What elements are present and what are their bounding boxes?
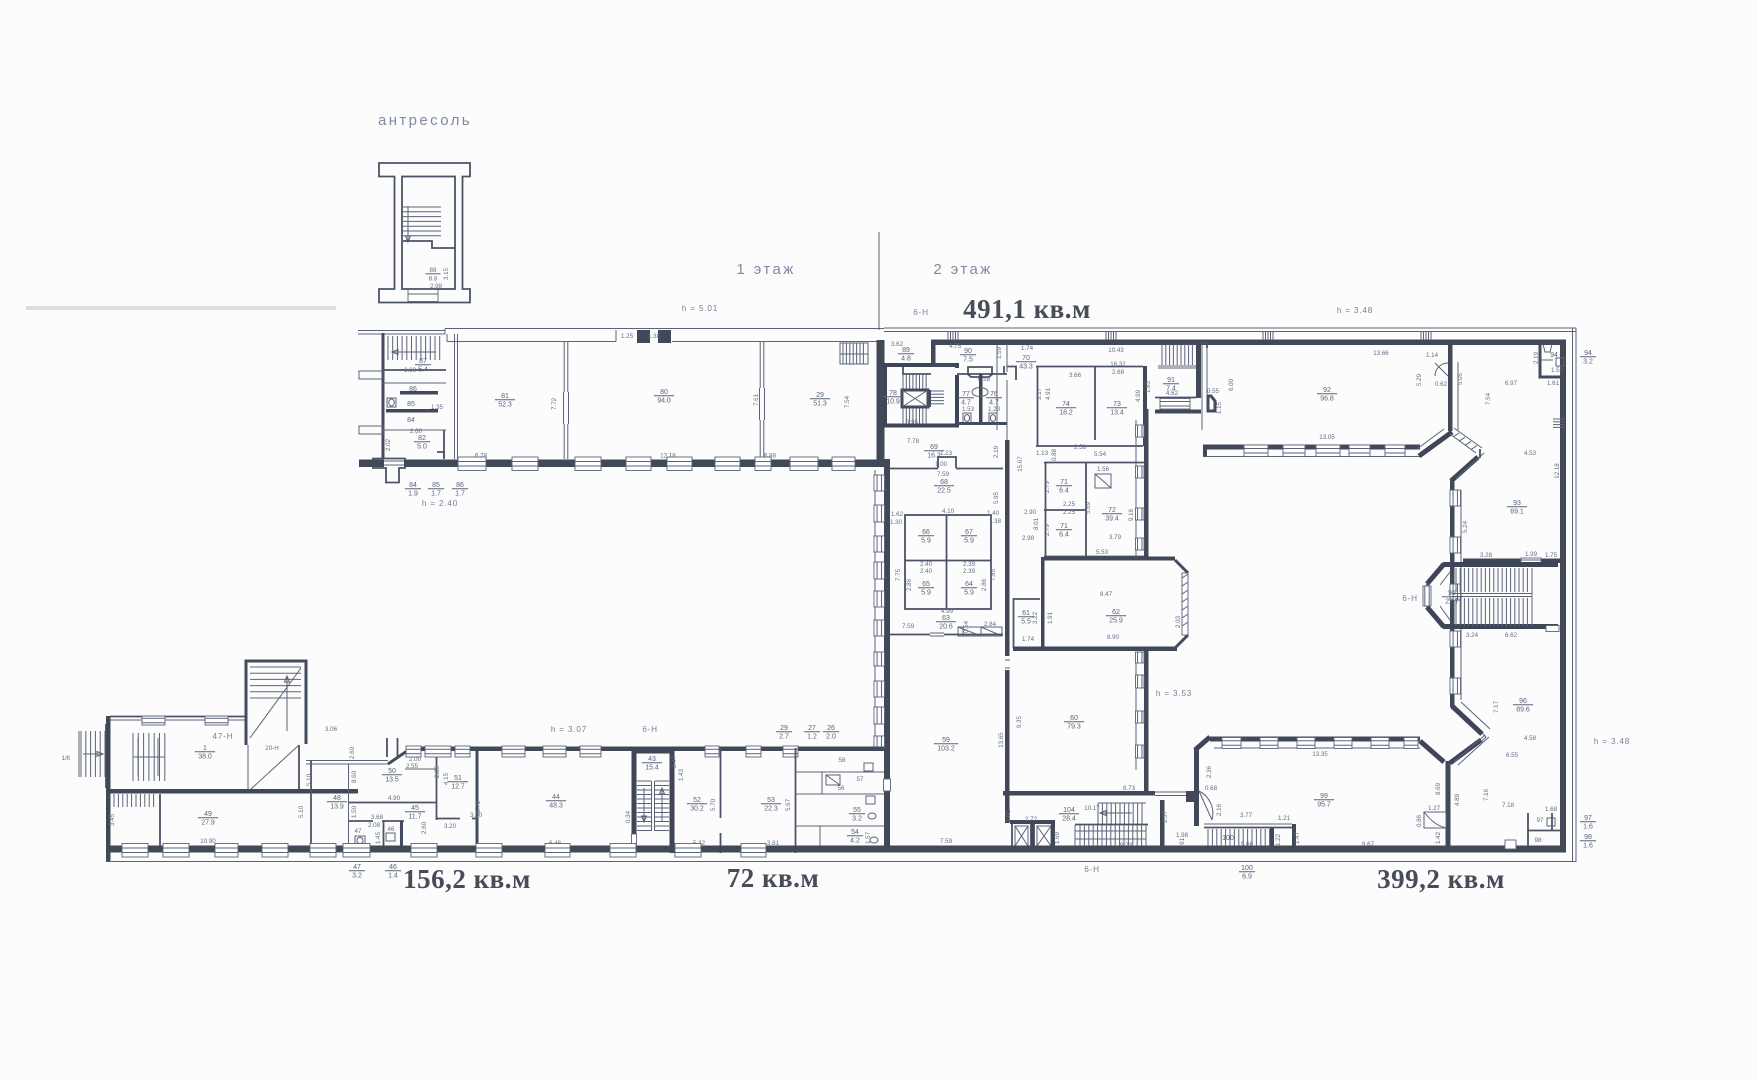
- svg-text:2.79: 2.79: [1044, 480, 1051, 493]
- svg-text:5.5: 5.5: [1021, 619, 1031, 626]
- svg-text:h = 3.48: h = 3.48: [1594, 737, 1630, 746]
- svg-text:5.10: 5.10: [306, 773, 313, 786]
- svg-text:22.5: 22.5: [937, 488, 951, 495]
- svg-text:103.2: 103.2: [937, 746, 955, 753]
- svg-text:7.59: 7.59: [937, 471, 950, 478]
- svg-text:52: 52: [693, 797, 701, 804]
- svg-text:2.19: 2.19: [993, 445, 1000, 458]
- svg-text:89: 89: [902, 347, 910, 354]
- svg-text:9.35: 9.35: [1016, 715, 1023, 728]
- svg-text:7.59: 7.59: [940, 838, 953, 845]
- svg-text:1.43: 1.43: [678, 768, 685, 781]
- svg-text:28.4: 28.4: [1062, 816, 1076, 823]
- svg-text:1.35: 1.35: [431, 404, 444, 411]
- svg-text:3.2: 3.2: [352, 873, 362, 880]
- svg-text:54: 54: [851, 829, 859, 836]
- svg-text:2.79: 2.79: [1044, 523, 1051, 536]
- svg-text:46: 46: [388, 826, 395, 833]
- svg-text:12.7: 12.7: [451, 784, 465, 791]
- svg-text:6.88: 6.88: [764, 453, 777, 460]
- svg-text:3.68: 3.68: [404, 367, 417, 374]
- svg-text:6-Н: 6-Н: [1402, 594, 1418, 603]
- svg-text:18.2: 18.2: [1059, 410, 1073, 417]
- svg-text:64: 64: [965, 581, 973, 588]
- svg-text:62: 62: [1112, 609, 1120, 616]
- svg-text:5.24: 5.24: [1462, 520, 1469, 533]
- svg-text:8.47: 8.47: [1100, 591, 1113, 598]
- svg-text:4.15: 4.15: [443, 772, 450, 785]
- svg-text:5.54: 5.54: [1094, 451, 1107, 458]
- svg-text:3.2: 3.2: [852, 816, 862, 823]
- svg-text:5.29: 5.29: [1416, 373, 1423, 386]
- svg-text:2.39: 2.39: [963, 561, 976, 568]
- svg-text:6.00: 6.00: [1228, 378, 1235, 391]
- svg-text:96.8: 96.8: [1320, 396, 1334, 403]
- svg-text:1.62: 1.62: [891, 511, 904, 518]
- svg-text:46: 46: [389, 864, 397, 871]
- svg-text:93: 93: [1513, 500, 1521, 507]
- svg-text:4.90: 4.90: [388, 795, 401, 802]
- svg-text:53: 53: [767, 797, 775, 804]
- svg-text:3.22: 3.22: [1032, 611, 1039, 624]
- svg-text:2.86: 2.86: [981, 578, 988, 591]
- svg-text:1.7: 1.7: [455, 491, 465, 498]
- svg-text:8.8: 8.8: [429, 276, 438, 283]
- svg-text:85: 85: [407, 401, 415, 408]
- svg-text:8.73: 8.73: [1123, 785, 1136, 792]
- svg-text:7.16: 7.16: [1483, 788, 1490, 801]
- svg-text:5.05: 5.05: [1457, 372, 1464, 385]
- svg-text:13.5: 13.5: [385, 777, 399, 784]
- svg-text:10.90: 10.90: [200, 838, 216, 845]
- svg-text:4.2: 4.2: [850, 838, 860, 845]
- svg-text:88: 88: [430, 267, 437, 274]
- svg-text:1.74: 1.74: [1021, 345, 1034, 352]
- svg-text:2.02: 2.02: [385, 438, 392, 451]
- svg-text:1.83: 1.83: [1145, 380, 1152, 393]
- svg-text:2.40: 2.40: [920, 561, 933, 568]
- svg-text:4.99: 4.99: [941, 608, 954, 615]
- svg-text:5.70: 5.70: [710, 798, 717, 811]
- svg-text:13.05: 13.05: [1319, 434, 1335, 441]
- svg-text:6-Н: 6-Н: [642, 725, 658, 734]
- svg-text:1.21: 1.21: [1278, 815, 1291, 822]
- svg-text:2.60: 2.60: [410, 428, 423, 435]
- svg-text:7.72: 7.72: [551, 397, 558, 410]
- svg-text:38.0: 38.0: [198, 754, 212, 761]
- svg-text:1/К: 1/К: [62, 755, 71, 762]
- svg-text:84: 84: [407, 417, 415, 424]
- svg-text:4.58: 4.58: [1524, 735, 1537, 742]
- svg-text:1.40: 1.40: [987, 510, 1000, 517]
- svg-text:1.98: 1.98: [1176, 832, 1189, 839]
- svg-text:91: 91: [1167, 377, 1175, 384]
- svg-text:6.55: 6.55: [1506, 752, 1519, 759]
- svg-text:7.75: 7.75: [895, 568, 902, 581]
- svg-text:1.27: 1.27: [1428, 805, 1441, 812]
- svg-text:68: 68: [940, 479, 948, 486]
- svg-text:4.99: 4.99: [1135, 389, 1142, 402]
- svg-text:2.08: 2.08: [368, 822, 381, 829]
- svg-text:13.4: 13.4: [1110, 410, 1124, 417]
- svg-text:13.66: 13.66: [1373, 350, 1389, 357]
- svg-text:7.54: 7.54: [844, 395, 851, 408]
- svg-text:1.23: 1.23: [940, 450, 953, 457]
- svg-text:69.1: 69.1: [1510, 509, 1524, 516]
- svg-text:20.6: 20.6: [939, 624, 953, 631]
- svg-text:82: 82: [418, 435, 426, 442]
- svg-text:55: 55: [853, 807, 861, 814]
- svg-text:89.6: 89.6: [1516, 707, 1530, 714]
- svg-text:47: 47: [353, 864, 361, 871]
- svg-text:2.16: 2.16: [1216, 803, 1223, 816]
- svg-text:4.91: 4.91: [1045, 387, 1052, 400]
- svg-text:44: 44: [552, 794, 560, 801]
- svg-text:1.68: 1.68: [1545, 806, 1558, 813]
- svg-text:2.00: 2.00: [409, 756, 422, 763]
- svg-text:92: 92: [1323, 387, 1331, 394]
- svg-text:1.75: 1.75: [1545, 552, 1558, 559]
- svg-text:95.7: 95.7: [1317, 802, 1331, 809]
- svg-text:1.38: 1.38: [989, 518, 1002, 525]
- svg-text:7.17: 7.17: [1493, 700, 1500, 713]
- svg-text:48: 48: [333, 795, 341, 802]
- svg-text:94: 94: [1584, 350, 1592, 357]
- svg-text:47-Н: 47-Н: [213, 732, 234, 741]
- svg-text:43: 43: [648, 756, 656, 763]
- svg-text:98: 98: [1535, 837, 1542, 844]
- svg-text:16.32: 16.32: [1110, 361, 1126, 368]
- svg-text:2.25: 2.25: [1063, 509, 1076, 516]
- svg-text:77: 77: [962, 391, 970, 398]
- svg-text:70: 70: [1022, 355, 1030, 362]
- svg-text:3.24: 3.24: [1466, 632, 1479, 639]
- svg-text:0.34: 0.34: [625, 810, 632, 823]
- svg-text:1.57: 1.57: [1162, 810, 1169, 823]
- svg-text:25.9: 25.9: [1109, 618, 1123, 625]
- svg-text:1.6: 1.6: [1583, 843, 1593, 850]
- svg-text:13.65: 13.65: [998, 732, 1005, 748]
- svg-text:1.45: 1.45: [375, 831, 382, 844]
- svg-text:78: 78: [889, 390, 897, 397]
- svg-text:2.60: 2.60: [421, 821, 428, 834]
- svg-text:8.90: 8.90: [1107, 634, 1120, 641]
- svg-text:1.22: 1.22: [1275, 833, 1282, 846]
- svg-text:66: 66: [922, 529, 930, 536]
- svg-text:2.36: 2.36: [1206, 765, 1213, 778]
- svg-text:13.35: 13.35: [1312, 751, 1328, 758]
- svg-text:0.86: 0.86: [1416, 814, 1423, 827]
- svg-text:2.72: 2.72: [1025, 816, 1038, 823]
- svg-text:156,2 кв.м: 156,2 кв.м: [403, 864, 531, 894]
- svg-text:5.9: 5.9: [921, 538, 931, 545]
- svg-text:72: 72: [1108, 507, 1116, 514]
- svg-text:56: 56: [838, 785, 845, 792]
- svg-text:72 кв.м: 72 кв.м: [727, 863, 820, 893]
- svg-text:30.2: 30.2: [690, 806, 704, 813]
- svg-text:1.01: 1.01: [1005, 809, 1012, 822]
- svg-text:1.91: 1.91: [1047, 611, 1054, 624]
- svg-text:15.4: 15.4: [645, 765, 659, 772]
- svg-text:h = 2.40: h = 2.40: [422, 499, 458, 508]
- svg-text:97: 97: [1584, 815, 1592, 822]
- svg-text:85: 85: [432, 482, 440, 489]
- svg-text:5.70: 5.70: [475, 800, 482, 813]
- svg-text:2.03: 2.03: [1175, 615, 1182, 628]
- svg-text:4.62: 4.62: [1166, 390, 1179, 397]
- svg-text:1.74: 1.74: [1022, 636, 1035, 643]
- svg-text:5.69: 5.69: [1085, 501, 1092, 514]
- svg-text:1.42: 1.42: [1435, 831, 1442, 844]
- svg-text:2.39: 2.39: [963, 568, 976, 575]
- svg-text:47: 47: [355, 828, 362, 835]
- svg-text:52.3: 52.3: [498, 402, 512, 409]
- svg-text:10.17: 10.17: [1084, 805, 1100, 812]
- svg-text:48.3: 48.3: [549, 803, 563, 810]
- svg-text:2.19: 2.19: [1533, 351, 1540, 364]
- svg-text:59: 59: [942, 737, 950, 744]
- svg-text:h = 5.01: h = 5.01: [682, 304, 718, 313]
- svg-text:1: 1: [203, 745, 207, 752]
- svg-text:51.3: 51.3: [813, 401, 827, 408]
- svg-text:5.53: 5.53: [1096, 549, 1109, 556]
- svg-text:13.9: 13.9: [330, 804, 344, 811]
- svg-text:6.4: 6.4: [1059, 488, 1069, 495]
- svg-text:39.4: 39.4: [1105, 516, 1119, 523]
- svg-text:90: 90: [964, 348, 972, 355]
- svg-text:6.4: 6.4: [1059, 532, 1069, 539]
- svg-text:1.61: 1.61: [1547, 380, 1560, 387]
- svg-text:1.99: 1.99: [1525, 551, 1538, 558]
- svg-text:7.78: 7.78: [907, 438, 920, 445]
- svg-text:5.95: 5.95: [993, 491, 1000, 504]
- svg-text:81: 81: [501, 393, 509, 400]
- svg-text:5.9: 5.9: [964, 538, 974, 545]
- svg-text:h = 3.53: h = 3.53: [1156, 689, 1192, 698]
- svg-text:7.59: 7.59: [902, 623, 915, 630]
- svg-text:27.9: 27.9: [201, 820, 215, 827]
- svg-text:45: 45: [411, 805, 419, 812]
- svg-text:3.68: 3.68: [371, 814, 384, 821]
- svg-text:4.53: 4.53: [1524, 450, 1537, 457]
- svg-text:95: 95: [1448, 590, 1456, 597]
- svg-text:7.61: 7.61: [753, 393, 760, 406]
- svg-text:1.25: 1.25: [621, 333, 634, 340]
- svg-text:87: 87: [419, 358, 427, 365]
- svg-text:1.13: 1.13: [1036, 450, 1049, 457]
- svg-text:11.7: 11.7: [408, 814, 421, 821]
- svg-text:5.0: 5.0: [417, 444, 427, 451]
- svg-text:15.67: 15.67: [1017, 456, 1024, 472]
- svg-text:29: 29: [816, 392, 824, 399]
- svg-text:2.40: 2.40: [920, 568, 933, 575]
- svg-text:2.98: 2.98: [1022, 535, 1035, 542]
- svg-text:антресоль: антресоль: [378, 112, 472, 129]
- svg-text:104: 104: [1063, 807, 1075, 814]
- svg-text:4.10: 4.10: [942, 508, 955, 515]
- svg-text:50: 50: [388, 768, 396, 775]
- svg-text:71: 71: [1060, 523, 1068, 530]
- svg-text:1.4: 1.4: [388, 873, 398, 880]
- svg-text:3.66: 3.66: [1069, 372, 1082, 379]
- svg-text:3.17: 3.17: [1036, 387, 1043, 400]
- svg-text:2.7: 2.7: [779, 734, 789, 741]
- svg-text:8.69: 8.69: [1435, 782, 1442, 795]
- svg-text:7.5: 7.5: [963, 357, 973, 364]
- svg-text:12.18: 12.18: [1554, 463, 1561, 479]
- svg-text:7.18: 7.18: [1502, 802, 1515, 809]
- svg-text:4.89: 4.89: [1454, 793, 1461, 806]
- svg-text:97: 97: [1537, 817, 1544, 824]
- svg-text:74: 74: [1062, 401, 1070, 408]
- svg-text:10.43: 10.43: [1108, 347, 1124, 354]
- svg-text:99: 99: [1320, 793, 1328, 800]
- svg-text:5.9: 5.9: [921, 590, 931, 597]
- svg-text:1.9: 1.9: [408, 491, 418, 498]
- svg-text:0.55: 0.55: [1207, 388, 1220, 395]
- svg-text:100: 100: [1241, 865, 1253, 872]
- svg-text:1.30: 1.30: [890, 519, 903, 526]
- svg-text:3.15: 3.15: [443, 267, 450, 280]
- svg-text:6.78: 6.78: [475, 453, 488, 460]
- svg-text:1.15: 1.15: [1216, 401, 1223, 414]
- svg-text:10.9: 10.9: [886, 399, 900, 406]
- svg-text:3.95: 3.95: [906, 419, 919, 426]
- svg-text:58: 58: [839, 757, 846, 764]
- svg-text:2.60: 2.60: [349, 746, 356, 759]
- svg-text:6.9: 6.9: [1242, 874, 1252, 881]
- svg-text:12.18: 12.18: [660, 453, 676, 460]
- svg-text:49: 49: [204, 811, 212, 818]
- svg-text:71: 71: [1060, 479, 1068, 486]
- svg-text:2.98: 2.98: [430, 283, 443, 290]
- svg-text:3.79: 3.79: [1109, 534, 1122, 541]
- svg-text:3.47: 3.47: [671, 755, 678, 768]
- svg-text:1.00: 1.00: [935, 461, 948, 468]
- svg-text:2.90: 2.90: [1024, 509, 1037, 516]
- svg-text:61: 61: [1022, 610, 1030, 617]
- svg-text:491,1 кв.м: 491,1 кв.м: [963, 294, 1091, 324]
- svg-text:1.6: 1.6: [1583, 824, 1593, 831]
- svg-text:1.14: 1.14: [1426, 352, 1439, 359]
- svg-text:8.01: 8.01: [1033, 517, 1040, 530]
- svg-text:1.52: 1.52: [1551, 367, 1564, 374]
- svg-text:2.86: 2.86: [906, 578, 913, 591]
- svg-text:26: 26: [827, 725, 835, 732]
- svg-text:3.62: 3.62: [891, 341, 904, 348]
- svg-text:3.45: 3.45: [109, 813, 116, 826]
- svg-text:2.25: 2.25: [1063, 501, 1076, 508]
- svg-text:0.62: 0.62: [1435, 381, 1448, 388]
- svg-text:1.23: 1.23: [988, 406, 1001, 413]
- svg-text:1.2: 1.2: [807, 734, 817, 741]
- svg-text:2.68: 2.68: [1112, 369, 1125, 376]
- svg-text:399,2 кв.м: 399,2 кв.м: [1377, 864, 1505, 894]
- svg-text:9.16: 9.16: [1128, 508, 1135, 521]
- svg-text:3.77: 3.77: [1240, 812, 1253, 819]
- svg-text:20-Н: 20-Н: [265, 745, 278, 752]
- svg-text:4.8: 4.8: [901, 356, 911, 363]
- svg-text:86: 86: [456, 482, 464, 489]
- svg-text:5.4: 5.4: [418, 367, 428, 374]
- svg-text:69: 69: [930, 444, 938, 451]
- svg-text:2.0: 2.0: [826, 734, 836, 741]
- svg-text:98: 98: [1584, 834, 1592, 841]
- svg-text:57: 57: [857, 776, 864, 783]
- svg-text:1.47: 1.47: [1294, 831, 1301, 844]
- svg-text:3.28: 3.28: [1480, 552, 1493, 559]
- svg-text:5.9: 5.9: [964, 590, 974, 597]
- svg-text:2 этаж: 2 этаж: [933, 261, 992, 278]
- svg-text:1.69: 1.69: [1054, 831, 1061, 844]
- svg-text:8.60: 8.60: [351, 770, 358, 783]
- svg-text:1.7: 1.7: [431, 491, 441, 498]
- svg-text:7.54: 7.54: [1485, 392, 1492, 405]
- svg-text:h = 3.07: h = 3.07: [551, 725, 587, 734]
- svg-text:6-Н: 6-Н: [913, 308, 929, 317]
- svg-text:60: 60: [1070, 715, 1078, 722]
- svg-text:3.06: 3.06: [325, 726, 338, 733]
- svg-text:2.85: 2.85: [434, 765, 441, 778]
- svg-text:6.62: 6.62: [1505, 632, 1518, 639]
- svg-text:27: 27: [808, 725, 816, 732]
- svg-text:6.97: 6.97: [1505, 380, 1518, 387]
- svg-text:51: 51: [454, 775, 462, 782]
- svg-text:29: 29: [780, 725, 788, 732]
- svg-text:73: 73: [1113, 401, 1121, 408]
- svg-text:100: 100: [1222, 835, 1234, 842]
- svg-text:79.3: 79.3: [1067, 724, 1081, 731]
- svg-text:94.0: 94.0: [657, 398, 671, 405]
- svg-text:0.68: 0.68: [1205, 785, 1218, 792]
- svg-text:h = 3.48: h = 3.48: [1337, 306, 1373, 315]
- svg-text:67: 67: [965, 529, 973, 536]
- svg-text:7.85: 7.85: [990, 568, 997, 581]
- svg-text:80: 80: [660, 389, 668, 396]
- svg-text:1 этаж: 1 этаж: [736, 261, 795, 278]
- svg-text:4.75: 4.75: [949, 343, 962, 350]
- svg-text:5.67: 5.67: [785, 798, 792, 811]
- svg-text:1.50: 1.50: [351, 805, 358, 818]
- svg-text:65: 65: [922, 581, 930, 588]
- svg-text:1.38: 1.38: [648, 333, 661, 340]
- svg-text:0.88: 0.88: [1051, 448, 1058, 461]
- svg-text:3.20: 3.20: [444, 823, 457, 830]
- svg-text:1.56: 1.56: [1097, 466, 1110, 473]
- svg-text:43.3: 43.3: [1019, 364, 1033, 371]
- svg-text:6-Н: 6-Н: [1084, 865, 1100, 874]
- svg-text:1.53: 1.53: [962, 406, 975, 413]
- svg-text:2.58: 2.58: [1074, 444, 1087, 451]
- svg-text:94: 94: [1550, 352, 1558, 359]
- svg-text:22.7: 22.7: [1445, 599, 1459, 606]
- svg-text:5.10: 5.10: [298, 805, 305, 818]
- svg-text:96: 96: [1519, 698, 1527, 705]
- svg-text:3.2: 3.2: [1583, 359, 1593, 366]
- svg-text:22.3: 22.3: [764, 806, 778, 813]
- svg-text:63: 63: [942, 615, 950, 622]
- svg-text:84: 84: [409, 482, 417, 489]
